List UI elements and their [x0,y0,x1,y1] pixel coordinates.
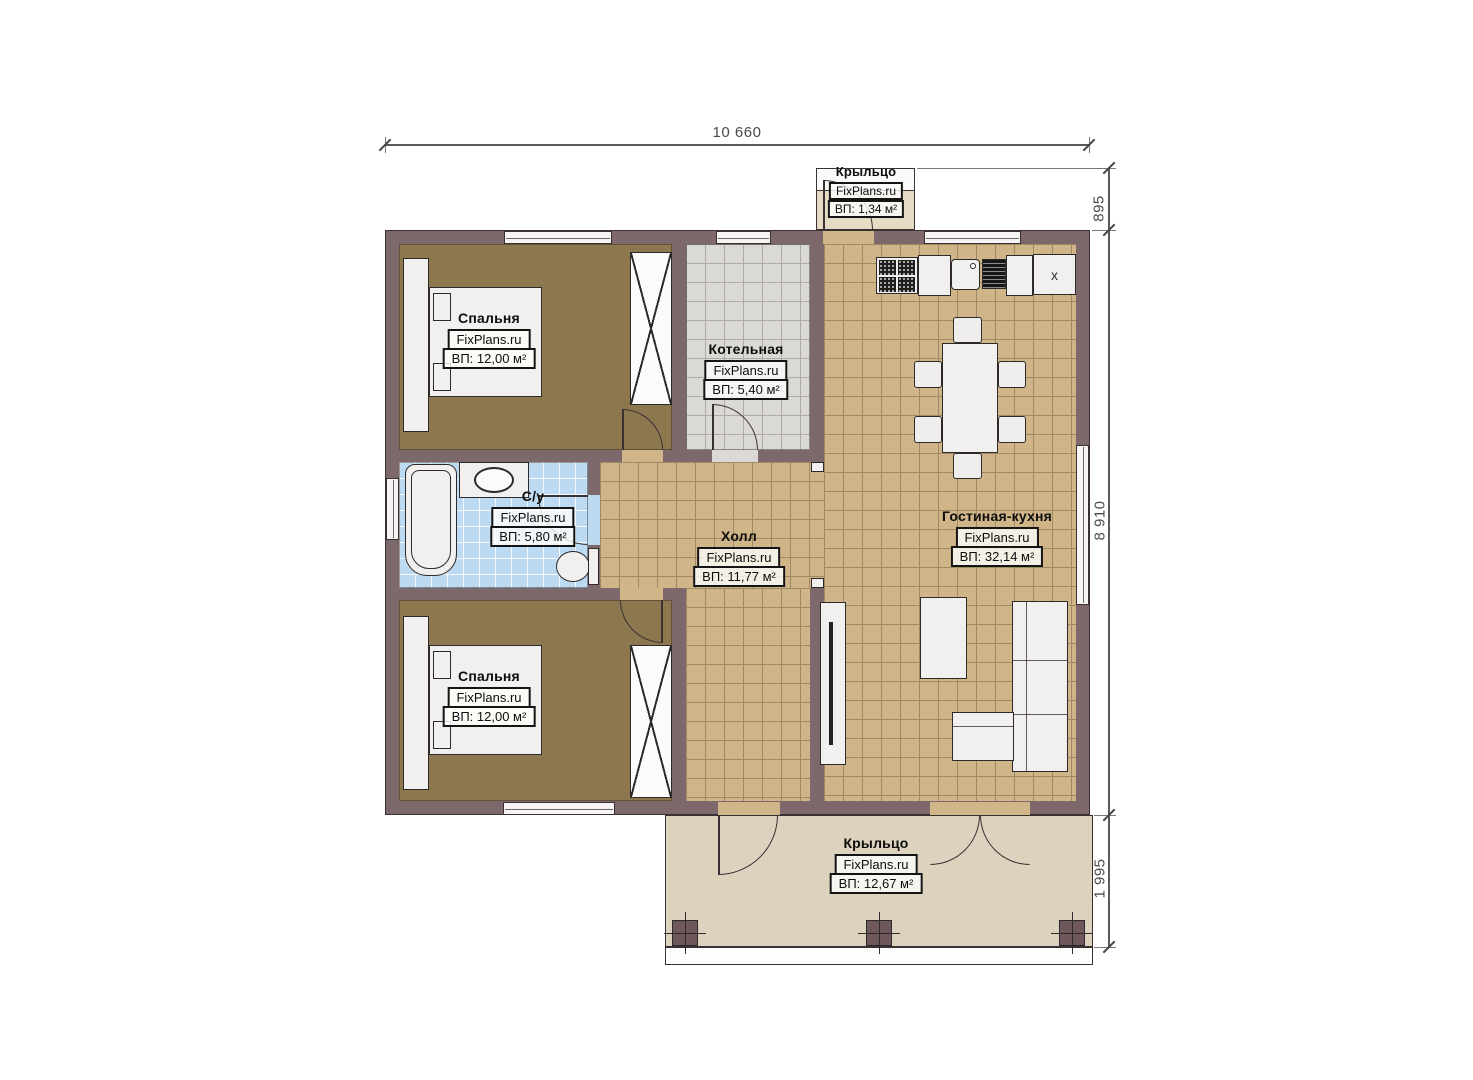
room-area: ВП: 5,80 м² [490,526,575,547]
window [386,478,399,540]
room-area: ВП: 1,34 м² [828,200,904,218]
room-area: ВП: 32,14 м² [951,546,1044,567]
entry-door-leaf [823,180,825,230]
toilet-tank [588,548,599,585]
porch-column [866,920,892,946]
toilet-bowl [556,551,590,582]
hall-porch-door-leaf [718,815,720,875]
room-title: Крыльцо [830,835,923,851]
wardrobe [630,252,672,405]
stove-burner [898,260,915,275]
hall-floor-lower [686,588,810,801]
window [924,231,1021,244]
sofa-seam [1013,714,1067,715]
opening-jamb [811,462,824,472]
dimension-line-top [385,144,1090,146]
floor-plan: x Спальня FixPlans.ru ВП: 12,00 м² Котел… [0,0,1473,1080]
room-title: Гостиная-кухня [942,508,1052,524]
room-title: Спальня [443,310,536,326]
bathroom-door-opening [588,495,600,545]
sink-tap [970,263,976,269]
watermark: FixPlans.ru [697,547,780,568]
sofa-seam [953,726,1013,727]
watermark: FixPlans.ru [447,329,530,350]
room-label-hall: Холл FixPlans.ru ВП: 11,77 м² [693,528,785,587]
window [1076,445,1089,605]
watermark: FixPlans.ru [491,507,574,528]
watermark: FixPlans.ru [447,687,530,708]
watermark: FixPlans.ru [704,360,787,381]
dimension-label-porch-bottom: 1 995 [1092,839,1109,919]
room-label-porch-bottom: Крыльцо FixPlans.ru ВП: 12,67 м² [830,835,923,894]
window [504,231,612,244]
hall-porch-door-opening [718,802,780,815]
dimension-label-width: 10 660 [677,124,797,141]
room-label-bathroom: С/у FixPlans.ru ВП: 5,80 м² [490,488,575,547]
stove-burner [898,277,915,292]
room-area: ВП: 12,00 м² [443,706,536,727]
dimension-ext [917,168,1116,169]
dish-rack [982,259,1006,289]
kitchen-counter [1006,255,1033,296]
room-label-bedroom-bottom: Спальня FixPlans.ru ВП: 12,00 м² [443,668,536,727]
wardrobe [630,645,672,798]
fridge: x [1033,254,1076,295]
watermark: FixPlans.ru [955,527,1038,548]
chair [998,361,1026,388]
room-area: ВП: 11,77 м² [693,566,785,587]
dining-table [942,343,998,453]
tv-icon [829,622,833,745]
room-title: Спальня [443,668,536,684]
sofa-chaise [952,712,1014,761]
room-title: С/у [490,488,575,504]
room-label-boiler: Котельная FixPlans.ru ВП: 5,40 м² [703,341,788,400]
room-area: ВП: 12,67 м² [830,873,923,894]
fridge-mark: x [1051,267,1058,283]
window [503,802,615,815]
room-title: Котельная [703,341,788,357]
bedroom-bottom-door-opening [620,588,663,600]
kitchen-counter [918,255,951,296]
chair [914,416,942,443]
boiler-door-leaf [712,404,714,450]
tv-stand [820,602,846,765]
bedroom-top-door-leaf [622,409,624,450]
chair [953,317,982,343]
dresser [403,258,429,432]
chair [998,416,1026,443]
room-area: ВП: 5,40 м² [703,379,788,400]
dimension-label-porch-top: 895 [1091,169,1108,249]
dimension-label-house: 8 910 [1092,481,1109,561]
watermark: FixPlans.ru [829,182,903,200]
opening-jamb [811,578,824,588]
stove-burner [879,260,896,275]
room-title: Холл [693,528,785,544]
window [716,231,771,244]
room-label-bedroom-top: Спальня FixPlans.ru ВП: 12,00 м² [443,310,536,369]
entry-door-opening [823,231,874,244]
chair [953,453,982,479]
room-title: Крыльцо [828,164,904,179]
stove-burner [879,277,896,292]
bedroom-bottom-door-leaf [661,600,663,643]
room-label-living-kitchen: Гостиная-кухня FixPlans.ru ВП: 32,14 м² [942,508,1052,567]
french-door-opening [930,802,1030,815]
sofa-seam [1026,602,1027,771]
watermark: FixPlans.ru [834,854,917,875]
coffee-table [920,597,967,679]
porch-column [1059,920,1085,946]
room-label-porch-top: Крыльцо FixPlans.ru ВП: 1,34 м² [828,164,904,218]
porch-column [672,920,698,946]
bathtub-inner [411,470,451,569]
chair [914,361,942,388]
sofa-seam [1013,660,1067,661]
bedroom-top-door-opening [622,450,663,462]
boiler-door-opening [712,450,758,462]
dresser [403,616,429,790]
sofa [1012,601,1068,772]
room-area: ВП: 12,00 м² [443,348,536,369]
